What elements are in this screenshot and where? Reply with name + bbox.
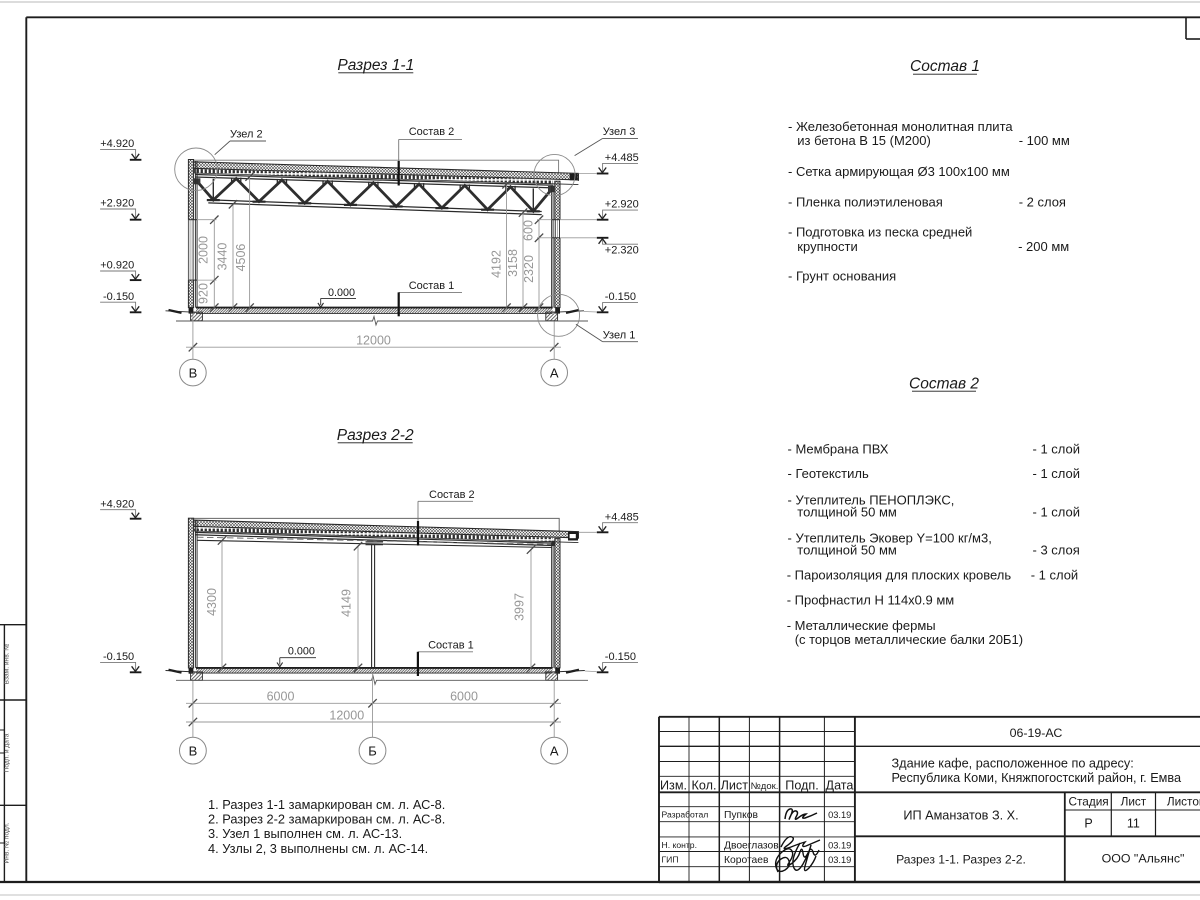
svg-text:- 3 слоя: - 3 слоя [1033,543,1080,558]
svg-text:+4.485: +4.485 [605,152,639,164]
svg-text:А: А [550,743,559,758]
svg-text:4506: 4506 [234,244,248,272]
svg-text:ООО "Альянс": ООО "Альянс" [1102,852,1185,866]
svg-text:ГИП: ГИП [662,855,679,865]
svg-text:Пупков: Пупков [724,810,758,821]
svg-text:- Металлические фермы: - Металлические фермы [787,618,936,633]
svg-text:Лист: Лист [1121,794,1147,808]
svg-text:920: 920 [196,283,210,304]
svg-text:12000: 12000 [329,708,364,722]
svg-text:Стадия: Стадия [1068,794,1108,808]
svg-text:Кол.: Кол. [692,778,717,792]
svg-text:0.000: 0.000 [288,646,315,658]
svg-text:толщиной 50 мм: толщиной 50 мм [797,505,897,520]
svg-text:-0.150: -0.150 [103,291,134,303]
svg-text:Лист: Лист [721,778,749,792]
svg-text:6000: 6000 [267,690,295,704]
svg-text:из бетона В 15 (М200): из бетона В 15 (М200) [797,133,931,148]
svg-text:- 1 слой: - 1 слой [1033,466,1081,481]
svg-text:- 200 мм: - 200 мм [1018,239,1069,254]
svg-text:3158: 3158 [506,249,520,277]
svg-text:- Пароизоляция для плоских кро: - Пароизоляция для плоских кровель [787,567,1012,582]
svg-text:- Пленка полиэтиленовая: - Пленка полиэтиленовая [788,194,943,209]
svg-text:Узел 2: Узел 2 [230,129,263,141]
svg-text:Республика Коми, Княжпогостски: Республика Коми, Княжпогостский район, г… [892,771,1182,785]
svg-text:- 1 слой: - 1 слой [1033,442,1081,457]
svg-text:Инв. № подл.: Инв. № подл. [4,822,11,863]
svg-text:А: А [550,365,559,380]
svg-text:600: 600 [521,220,535,241]
svg-text:12000: 12000 [356,334,391,348]
svg-text:Листов: Листов [1167,794,1200,808]
svg-text:Состав 1: Состав 1 [910,58,980,75]
svg-text:2320: 2320 [522,255,536,283]
svg-text:- Профнастил Н 114x0.9 мм: - Профнастил Н 114x0.9 мм [787,592,955,607]
svg-text:06-19-АС: 06-19-АС [1010,726,1063,740]
svg-text:4. Узлы 2, 3 выполнены см. л.: 4. Узлы 2, 3 выполнены см. л. АС-14. [208,841,428,856]
svg-text:4192: 4192 [490,250,504,278]
svg-text:4149: 4149 [340,589,354,617]
svg-text:-0.150: -0.150 [605,651,636,663]
svg-text:толщиной 50 мм: толщиной 50 мм [797,543,897,558]
svg-text:+2.920: +2.920 [605,199,639,211]
svg-text:№док.: №док. [751,781,779,792]
svg-text:Разрез 1-1. Разрез 2-2.: Разрез 1-1. Разрез 2-2. [896,853,1026,867]
svg-text:2000: 2000 [196,236,210,264]
svg-text:Разрез 1-1: Разрез 1-1 [337,57,414,74]
svg-text:- Мембрана ПВХ: - Мембрана ПВХ [788,442,889,457]
svg-text:Двоеглазов: Двоеглазов [724,841,779,852]
svg-text:-0.150: -0.150 [103,651,134,663]
svg-text:- Сетка армирующая Ø3 100x100: - Сетка армирующая Ø3 100x100 мм [788,164,1010,179]
svg-text:В: В [189,743,198,758]
svg-text:-0.150: -0.150 [605,291,636,303]
svg-text:Состав 1: Состав 1 [428,639,474,651]
svg-text:03.19: 03.19 [828,810,851,820]
svg-text:- 1 слой: - 1 слой [1033,505,1081,520]
svg-text:3997: 3997 [513,593,527,621]
svg-text:Подп. и дата: Подп. и дата [4,733,11,772]
svg-text:- 100 мм: - 100 мм [1019,133,1070,148]
svg-text:03.19: 03.19 [828,855,851,865]
svg-text:Дата: Дата [826,778,854,792]
svg-text:+4.485: +4.485 [605,511,639,523]
svg-text:3. Узел 1 выполнен см. л. АС-1: 3. Узел 1 выполнен см. л. АС-13. [208,826,402,841]
svg-text:Здание кафе, расположенное по: Здание кафе, расположенное по адресу: [892,757,1134,771]
svg-text:Разрез 2-2: Разрез 2-2 [337,427,414,444]
svg-text:2. Разрез 2-2 замаркирован см.: 2. Разрез 2-2 замаркирован см. л. АС-8. [208,812,445,827]
svg-text:- 2 слоя: - 2 слоя [1019,194,1066,209]
svg-text:+2.320: +2.320 [605,245,639,257]
svg-text:- Геотекстиль: - Геотекстиль [788,466,869,481]
svg-text:ИП Аманзатов З. Х.: ИП Аманзатов З. Х. [903,809,1018,823]
svg-text:Состав 2: Состав 2 [429,489,475,501]
svg-text:В: В [189,365,198,380]
svg-text:- Подготовка из песка средней: - Подготовка из песка средней [788,224,972,239]
svg-text:(с торцов металлические балки: (с торцов металлические балки 20Б1) [795,632,1023,647]
svg-text:+2.920: +2.920 [100,198,134,210]
svg-text:Разработал: Разработал [662,810,709,820]
svg-text:Р: Р [1084,817,1092,831]
svg-text:03.19: 03.19 [828,841,851,851]
svg-text:11: 11 [1127,817,1140,831]
svg-text:- 1 слой: - 1 слой [1031,567,1079,582]
svg-text:0.000: 0.000 [328,287,355,299]
svg-text:Подп.: Подп. [785,778,818,792]
svg-text:Состав 1: Состав 1 [409,280,455,292]
svg-text:Узел 3: Узел 3 [603,126,636,138]
svg-text:Узел 1: Узел 1 [603,329,636,341]
svg-text:крупности: крупности [797,239,857,254]
svg-text:Состав 2: Состав 2 [409,126,455,138]
svg-text:Коротаев: Коротаев [724,855,769,866]
svg-text:+4.920: +4.920 [100,498,134,510]
svg-text:+4.920: +4.920 [100,138,134,150]
svg-text:Н. контр.: Н. контр. [662,840,697,850]
svg-text:- Грунт основания: - Грунт основания [788,269,896,284]
svg-text:Взам. инв. №: Взам. инв. № [4,644,11,685]
svg-text:Изм.: Изм. [660,778,687,792]
svg-text:3440: 3440 [216,243,230,271]
svg-text:6000: 6000 [450,690,478,704]
svg-text:Состав 2: Состав 2 [909,375,979,392]
svg-text:1. Разрез 1-1 замаркирован см.: 1. Разрез 1-1 замаркирован см. л. АС-8. [208,797,445,812]
svg-text:4300: 4300 [205,588,219,616]
svg-text:Б: Б [368,743,377,758]
svg-text:+0.920: +0.920 [100,260,134,272]
svg-text:- Железобетонная монолитная п: - Железобетонная монолитная плита [788,119,1013,134]
